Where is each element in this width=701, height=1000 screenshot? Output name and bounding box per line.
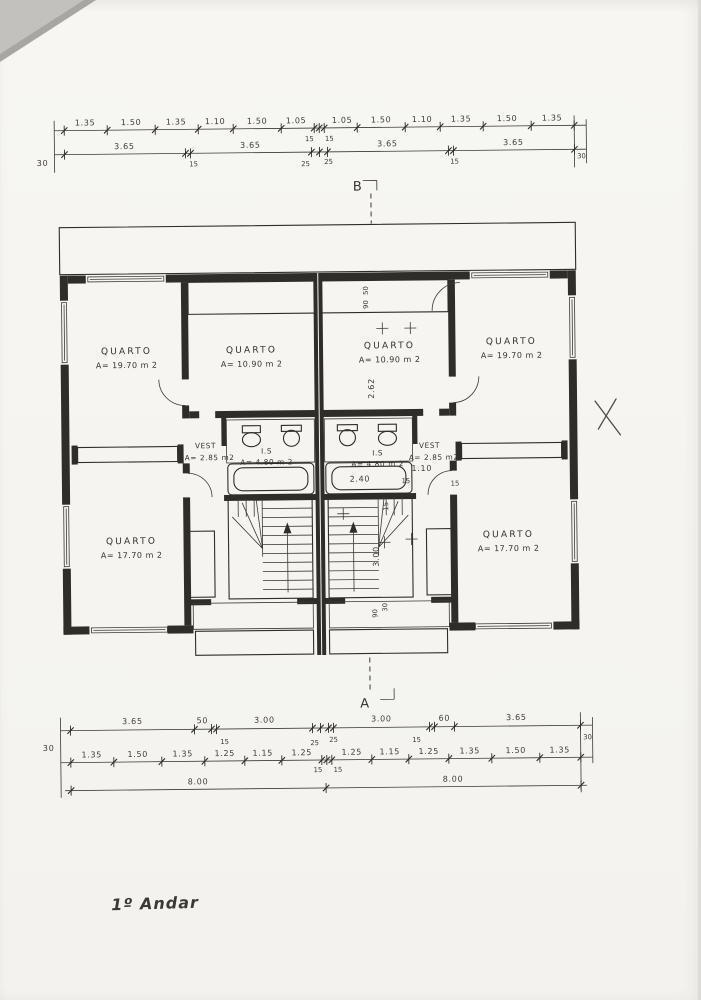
dim-value: 1.35 <box>166 117 187 126</box>
inner-dim-vertical: 3.00 <box>372 546 381 567</box>
dim-value: 1.35 <box>549 745 570 754</box>
dim-value: 1.25 <box>291 748 312 757</box>
dim-value: 3.00 <box>371 714 392 723</box>
dim-value: 25 <box>329 736 338 744</box>
dim-value: 1.50 <box>497 114 518 123</box>
section-marker-top: B <box>353 180 363 195</box>
room-area: A= 10.90 m 2 <box>221 359 283 369</box>
inner-dim-vertical: 90 <box>371 609 379 618</box>
inner-dim-vertical: 15 <box>382 502 390 511</box>
door-swing <box>432 283 460 311</box>
dim-value: 3.65 <box>240 141 261 150</box>
vestibule-label: VEST <box>195 441 216 450</box>
dim-value: 1.15 <box>379 747 400 756</box>
bottom-dim-row3-ticks <box>68 780 584 795</box>
room-label: QUARTO <box>486 337 537 348</box>
dim-value: 1.35 <box>81 750 102 759</box>
dim-value: 60 <box>439 714 451 723</box>
dim-value: 25 <box>301 160 310 168</box>
room-label: QUARTO <box>364 341 415 352</box>
dim-value: 15 <box>450 158 459 166</box>
bathroom-area: A= 4.80 m 2 <box>240 457 293 467</box>
bottom-dimension-chains: 3.65 50 15 3.00 25 25 3.00 15 60 3.65 1.… <box>43 712 594 798</box>
top-dimension-chains: 1.35 1.50 1.35 1.10 1.50 1.05 15 15 1.05… <box>36 113 586 173</box>
inner-dim-vertical: 30 <box>381 603 389 612</box>
x-scribble-mark <box>595 399 620 435</box>
dim-value: 3.65 <box>506 713 527 722</box>
dim-value: 1.15 <box>252 749 273 758</box>
inner-dim: 2.40 <box>350 474 371 483</box>
dim-value: 15 <box>412 736 421 744</box>
dim-value: 25 <box>310 739 319 747</box>
room-area: A= 19.70 m 2 <box>481 351 543 361</box>
dim-value: 1.50 <box>127 750 148 759</box>
dim-value: 1.05 <box>286 116 307 125</box>
room-area: A= 17.70 m 2 <box>101 551 163 561</box>
roof-overhang-hatch <box>59 222 575 274</box>
inner-dim: 15 <box>402 477 411 485</box>
dim-end-value: 30 <box>37 159 49 168</box>
dim-value: 1.25 <box>214 749 235 758</box>
scanned-floor-plan-page: B A QUARTO A= 19.70 m 2 QUARTO A= 10.90 … <box>0 0 701 1000</box>
dim-end-value: 30 <box>43 744 55 753</box>
dim-value: 15 <box>314 766 323 774</box>
room-label: QUARTO <box>226 345 277 356</box>
dim-value: 1.35 <box>542 113 563 122</box>
dim-value: 15 <box>305 135 314 143</box>
dim-value: 1.25 <box>418 747 439 756</box>
dim-value: 3.65 <box>503 138 524 147</box>
dim-value: 1.25 <box>341 748 362 757</box>
dim-value: 3.00 <box>254 715 275 724</box>
floor-plan-drawing: B A QUARTO A= 19.70 m 2 QUARTO A= 10.90 … <box>0 0 701 1000</box>
dim-value: 1.50 <box>247 117 268 126</box>
dim-value: 15 <box>220 738 229 746</box>
dim-value: 1.05 <box>332 116 353 125</box>
dim-value: 1.10 <box>412 115 433 124</box>
inner-dim-vertical: 50 <box>362 286 370 295</box>
dim-value: 1.50 <box>371 115 392 124</box>
vestibule-label: VEST <box>419 441 440 450</box>
dim-value: 3.65 <box>122 717 143 726</box>
vestibule-area: A= 2.85 m2 <box>185 453 235 463</box>
dim-value: 1.35 <box>172 749 193 758</box>
inner-dim-vertical: 2.62 <box>367 378 376 399</box>
dim-value: 1.10 <box>205 117 226 126</box>
inner-dim: 15 <box>451 480 460 488</box>
top-dim-row2-ticks <box>61 144 577 159</box>
dim-value: 3.65 <box>377 139 398 148</box>
room-label: QUARTO <box>483 530 534 541</box>
dim-value: 1.35 <box>451 114 472 123</box>
room-area: A= 19.70 m 2 <box>96 361 158 371</box>
room-label: QUARTO <box>106 537 157 548</box>
dim-value: 1.50 <box>121 118 142 127</box>
section-marker-bottom: A <box>360 696 370 711</box>
dim-value: 1.35 <box>75 118 96 127</box>
bathroom-label: I.S <box>261 447 272 456</box>
dim-value: 8.00 <box>443 775 464 784</box>
dim-value: 1.35 <box>459 746 480 755</box>
dim-value: 15 <box>325 135 334 143</box>
dim-value: 1.50 <box>505 746 526 755</box>
room-label: QUARTO <box>101 347 152 358</box>
bathroom-label: I.S <box>372 448 383 457</box>
room-area: A= 10.90 m 2 <box>359 355 421 365</box>
floor-title: 1º Andar <box>111 893 199 914</box>
dim-value: 50 <box>197 716 209 725</box>
dim-end-value: 30 <box>577 152 586 160</box>
dim-end-value: 30 <box>583 733 592 741</box>
inner-dim: 1.10 <box>411 464 432 473</box>
inner-dim-vertical: 90 <box>362 300 370 309</box>
dim-value: 3.65 <box>114 142 135 151</box>
dim-value: 8.00 <box>188 777 209 786</box>
dim-value: 15 <box>334 766 343 774</box>
room-area: A= 17.70 m 2 <box>478 544 540 554</box>
vestibule-area: A= 2.85 m2 <box>409 453 459 463</box>
bathroom-area: A= 4.80 m 2 <box>351 459 404 469</box>
dim-value: 25 <box>324 158 333 166</box>
dim-value: 15 <box>189 160 198 168</box>
